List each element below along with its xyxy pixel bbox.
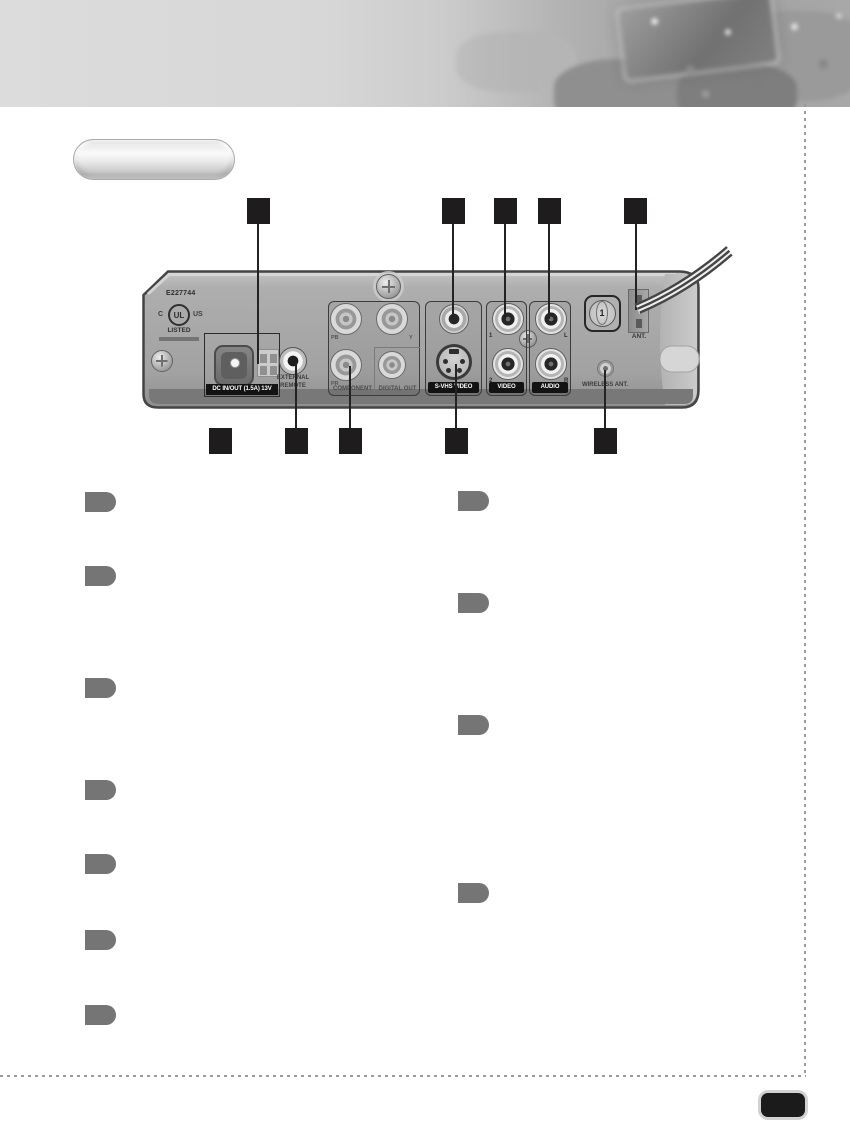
ul-suffix: US	[193, 311, 203, 318]
video-jack-2	[492, 348, 524, 380]
screw-icon	[376, 274, 401, 299]
ant-label: ANT.	[621, 333, 657, 340]
list-item-tab	[458, 491, 489, 511]
list-item-tab	[85, 678, 116, 698]
callout-leader-line	[452, 224, 454, 319]
dc-jack	[214, 345, 254, 386]
callout-marker	[285, 428, 308, 454]
s-video-din-jack	[436, 344, 472, 380]
callout-marker	[445, 428, 468, 454]
power-connector	[257, 349, 279, 377]
photo-speckle	[628, 0, 850, 107]
list-item-tab	[458, 715, 489, 735]
component-y-jack	[376, 303, 408, 335]
video-label: VIDEO	[489, 382, 524, 393]
video-group: 1 2 VIDEO	[486, 301, 527, 396]
callout-leader-line	[295, 362, 297, 428]
svhs-video-label: S-VHS VIDEO	[428, 382, 479, 393]
digital-out-label: DIGITAL OUT	[374, 386, 421, 392]
callout-marker	[494, 198, 517, 224]
ul-listed-label: LISTED	[160, 327, 198, 334]
list-item-tab	[85, 492, 116, 512]
ul-prefix: C	[158, 311, 163, 318]
section-title-pill	[73, 139, 235, 180]
component-group: PB Y PR COMPONENT DIGITAL OUT	[328, 301, 420, 396]
list-item-tab	[85, 566, 116, 586]
group-divider	[374, 347, 420, 348]
callout-leader-line	[504, 224, 506, 319]
din-pin	[443, 359, 448, 364]
callout-leader-line	[349, 366, 351, 428]
manual-page: E227744 UL C US LISTED DC IN/OUT (1.5A) …	[0, 0, 850, 1121]
audio-group: L R AUDIO	[529, 301, 571, 396]
callout-marker	[594, 428, 617, 454]
callout-leader-line	[604, 370, 606, 428]
y-label: Y	[409, 335, 413, 341]
circuit-board-photo	[357, 0, 850, 107]
callout-marker	[209, 428, 232, 454]
list-item-tab	[85, 780, 116, 800]
external-remote-jack	[279, 347, 307, 375]
callout-marker	[247, 198, 270, 224]
callout-marker	[339, 428, 362, 454]
connector-slot	[270, 354, 277, 363]
dc-jack-pin	[230, 358, 240, 368]
connector-slot	[260, 366, 267, 375]
connector-slot	[260, 354, 267, 363]
audio-l-label: L	[564, 333, 568, 339]
digital-out-jack	[378, 351, 406, 379]
page-number-badge	[761, 1093, 805, 1117]
external-remote-label-line2: REMOTE	[269, 383, 317, 391]
ul-logo-icon: UL	[168, 304, 190, 326]
external-remote-label-line1: EXTERNAL	[269, 375, 317, 383]
din-pin	[457, 368, 462, 373]
list-item-tab	[458, 883, 489, 903]
pb-label: PB	[331, 335, 339, 341]
callout-marker	[624, 198, 647, 224]
ul-fine-print	[159, 337, 199, 341]
header-banner	[0, 0, 850, 107]
screw-icon	[151, 350, 173, 372]
callout-leader-line	[548, 224, 550, 319]
model-number: E227744	[166, 290, 195, 297]
audio-label: AUDIO	[532, 382, 568, 393]
video-1-label: 1	[489, 333, 492, 339]
list-item-tab	[458, 593, 489, 613]
component-label: COMPONENT	[329, 386, 376, 392]
antenna-wires	[595, 233, 740, 325]
list-item-tab	[85, 1005, 116, 1025]
audio-jack-l	[535, 303, 567, 335]
dotted-rule-bottom	[0, 1075, 806, 1077]
component-pr-jack	[330, 349, 362, 381]
dotted-rule-right	[804, 90, 806, 1077]
callout-leader-line	[455, 364, 457, 428]
callout-marker	[538, 198, 561, 224]
composite-video-jack	[439, 304, 469, 334]
dc-port-label: DC IN/OUT (1.5A) 13V	[206, 384, 278, 395]
din-pin	[460, 359, 465, 364]
callout-leader-line	[257, 224, 259, 364]
din-key-slot	[449, 349, 459, 354]
list-item-tab	[85, 930, 116, 950]
video-jack-1	[492, 303, 524, 335]
component-pb-jack	[330, 303, 362, 335]
callout-marker	[442, 198, 465, 224]
list-item-tab	[85, 854, 116, 874]
connector-slot	[270, 366, 277, 375]
audio-jack-r	[535, 348, 567, 380]
din-pin	[446, 368, 451, 373]
